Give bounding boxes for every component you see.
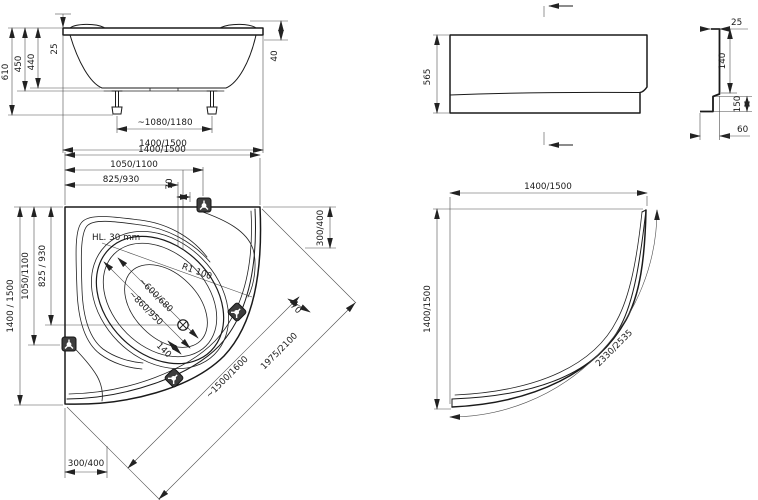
front-panel-outline <box>450 35 647 113</box>
bath-rim-outline <box>63 28 263 35</box>
dim-plan-bottom-300-label: 300/400 <box>68 459 105 469</box>
dim-60-label: 60 <box>737 125 749 135</box>
dim-plan-diag-70-label: 70 <box>288 301 303 316</box>
drain-icon <box>178 320 188 330</box>
dim-apron-depth-label: 1400/1500 <box>423 285 433 333</box>
dim-440-label: 440 <box>27 53 37 70</box>
dim-plan-left-825-label: 825 / 930 <box>38 245 48 288</box>
side-elevation-view: 610 450 440 25 40 ~1080/1180 1400/1500 <box>1 14 288 153</box>
dim-plan-diag-1975-label: 1975/2100 <box>259 331 300 372</box>
dim-plan-rim-1500-label: ~1500/1600 <box>205 354 251 400</box>
mounting-bracket-icon <box>62 337 76 351</box>
label-hl30: HL. 30 mm <box>92 233 140 243</box>
dim-plan-left-1050-label: 1050/1100 <box>21 252 31 300</box>
dim-plan-left-1400-label: 1400 / 1500 <box>6 279 16 333</box>
dim-565-label: 565 <box>423 69 433 86</box>
dim-plan-top-1050-label: 1050/1100 <box>110 160 158 170</box>
dim-450-label: 450 <box>14 55 24 72</box>
apron-inner-curve-2 <box>455 212 642 395</box>
panel-profile-outline <box>700 29 720 112</box>
dim-150-label: 150 <box>733 95 743 112</box>
bath-foot-left <box>112 91 122 114</box>
bath-body-outline <box>70 35 256 88</box>
panel-profile-view: 25 140 150 60 <box>694 18 752 140</box>
dim-drain-140-label: 140 <box>154 341 173 360</box>
dim-40-label: 40 <box>270 50 280 62</box>
dim-140-label: 140 <box>718 52 728 69</box>
dim-plan-top-70-label: 70 <box>165 178 175 190</box>
apron-plan-view: 1400/1500 1400/1500 2330/2535 <box>423 182 657 417</box>
bath-foot-right <box>207 91 217 114</box>
section-cut-marker-top <box>544 6 573 17</box>
bathtub-technical-drawing: 610 450 440 25 40 ~1080/1180 1400/1500 5… <box>0 0 758 500</box>
front-panel-divider <box>450 92 640 95</box>
plan-rim-contour-3 <box>200 211 255 297</box>
drawing-canvas: 610 450 440 25 40 ~1080/1180 1400/1500 5… <box>0 0 758 500</box>
section-cut-marker-bottom <box>544 132 573 145</box>
plan-view: 1400/1500 1050/1100 825/930 70 1400 / 15… <box>6 145 356 500</box>
mounting-bracket-icon <box>197 198 211 212</box>
dim-apron-arc-label: 2330/2535 <box>594 328 635 369</box>
dim-25-label: 25 <box>50 43 60 54</box>
apron-inner-curve-1 <box>452 210 646 399</box>
dim-feet-span-label: ~1080/1180 <box>137 118 193 128</box>
dim-plan-top-825-label: 825/930 <box>103 175 140 185</box>
dim-25-profile-label: 25 <box>731 18 742 28</box>
dim-apron-width-label: 1400/1500 <box>524 182 572 192</box>
dim-610-label: 610 <box>1 63 11 80</box>
front-panel-view: 565 <box>423 6 647 145</box>
mounting-bracket-icon <box>164 368 184 388</box>
dim-plan-right-300-label: 300/400 <box>316 209 326 246</box>
dim-plan-top-1400-label: 1400/1500 <box>138 145 186 155</box>
